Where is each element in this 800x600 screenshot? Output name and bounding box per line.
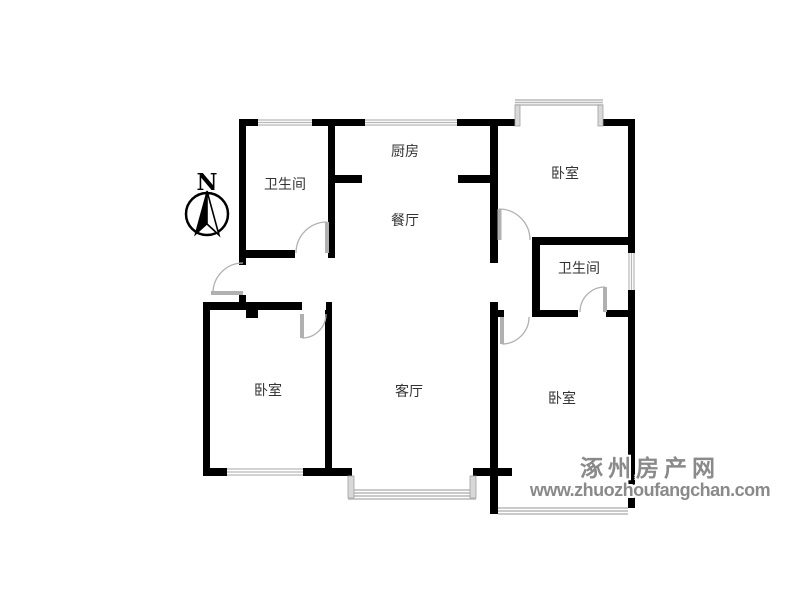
- wall-segment: [335, 175, 362, 183]
- wall-segment: [239, 119, 258, 126]
- room-label-balcony: 阳台: [546, 483, 574, 499]
- room-label-living: 客厅: [395, 383, 423, 399]
- wall-segment: [246, 302, 258, 318]
- wall-segment: [203, 468, 227, 476]
- entrance-door-arc: [213, 263, 243, 293]
- bathroom-nw-door-arc: [296, 222, 327, 253]
- wall-segment: [239, 126, 246, 265]
- window: [258, 119, 312, 126]
- room-label-bedroom-sw: 卧室: [254, 382, 282, 398]
- balcony-window: [498, 508, 628, 514]
- bay-window-south-bar: [470, 476, 476, 498]
- room-label-dining: 餐厅: [391, 212, 419, 228]
- north-label: N: [196, 169, 217, 196]
- compass: N: [186, 169, 228, 235]
- wall-segment: [203, 302, 210, 476]
- wall-segment: [312, 119, 365, 126]
- wall-segment: [532, 245, 540, 317]
- wall-segment: [328, 126, 335, 258]
- wall-segment: [490, 468, 512, 476]
- bedroom-se-door: [502, 317, 529, 344]
- wall-segment: [303, 468, 352, 476]
- wall-segment: [628, 126, 635, 253]
- wall-segment: [239, 250, 295, 258]
- window: [365, 119, 457, 126]
- wall-segment: [457, 119, 517, 126]
- bedroom-ne-door-arc: [499, 209, 530, 240]
- bathroom-e-door: [580, 287, 605, 312]
- bedroom-ne-door: [499, 209, 530, 240]
- wall-segment: [458, 175, 490, 183]
- bay-window-south-bar: [348, 476, 354, 498]
- room-label-bedroom-se: 卧室: [548, 390, 576, 406]
- bathroom-e-door-arc: [580, 287, 605, 312]
- wall-segment: [490, 302, 498, 476]
- wall-segment: [603, 119, 635, 126]
- bedroom-sw-door-arc: [302, 314, 326, 338]
- bay-window-north-bar: [515, 105, 520, 126]
- room-label-bathroom-e: 卫生间: [558, 260, 600, 276]
- window: [227, 468, 303, 476]
- wall-segment: [326, 302, 332, 310]
- floorplan-drawing: 卫生间厨房餐厅卧室卫生间卧室客厅卧室阳台 N: [0, 0, 800, 600]
- floorplan-page: 卫生间厨房餐厅卧室卫生间卧室客厅卧室阳台 N 涿州房产网 www.zhuozho…: [0, 0, 800, 600]
- bay-window-north: [515, 100, 603, 126]
- wall-segment: [532, 310, 578, 317]
- bedroom-se-door-arc: [502, 317, 529, 344]
- wall-segment: [628, 290, 635, 508]
- bay-window-south: [348, 476, 476, 499]
- window: [628, 253, 635, 290]
- room-label-bedroom-ne: 卧室: [551, 165, 579, 181]
- wall-segment: [490, 126, 498, 263]
- compass-needle-left: [195, 191, 207, 235]
- wall-segment: [532, 237, 628, 245]
- wall-segment: [606, 310, 628, 317]
- room-label-bathroom-nw: 卫生间: [264, 176, 306, 192]
- room-label-kitchen: 厨房: [391, 143, 419, 159]
- wall-segment: [498, 310, 504, 317]
- entrance-door: [211, 263, 243, 293]
- bathroom-nw-door: [296, 222, 327, 253]
- bay-window-north-bar: [598, 105, 603, 126]
- compass-needle-right: [207, 191, 219, 235]
- wall-segment: [490, 476, 498, 514]
- wall-segment: [325, 310, 332, 476]
- bedroom-sw-door: [302, 314, 326, 338]
